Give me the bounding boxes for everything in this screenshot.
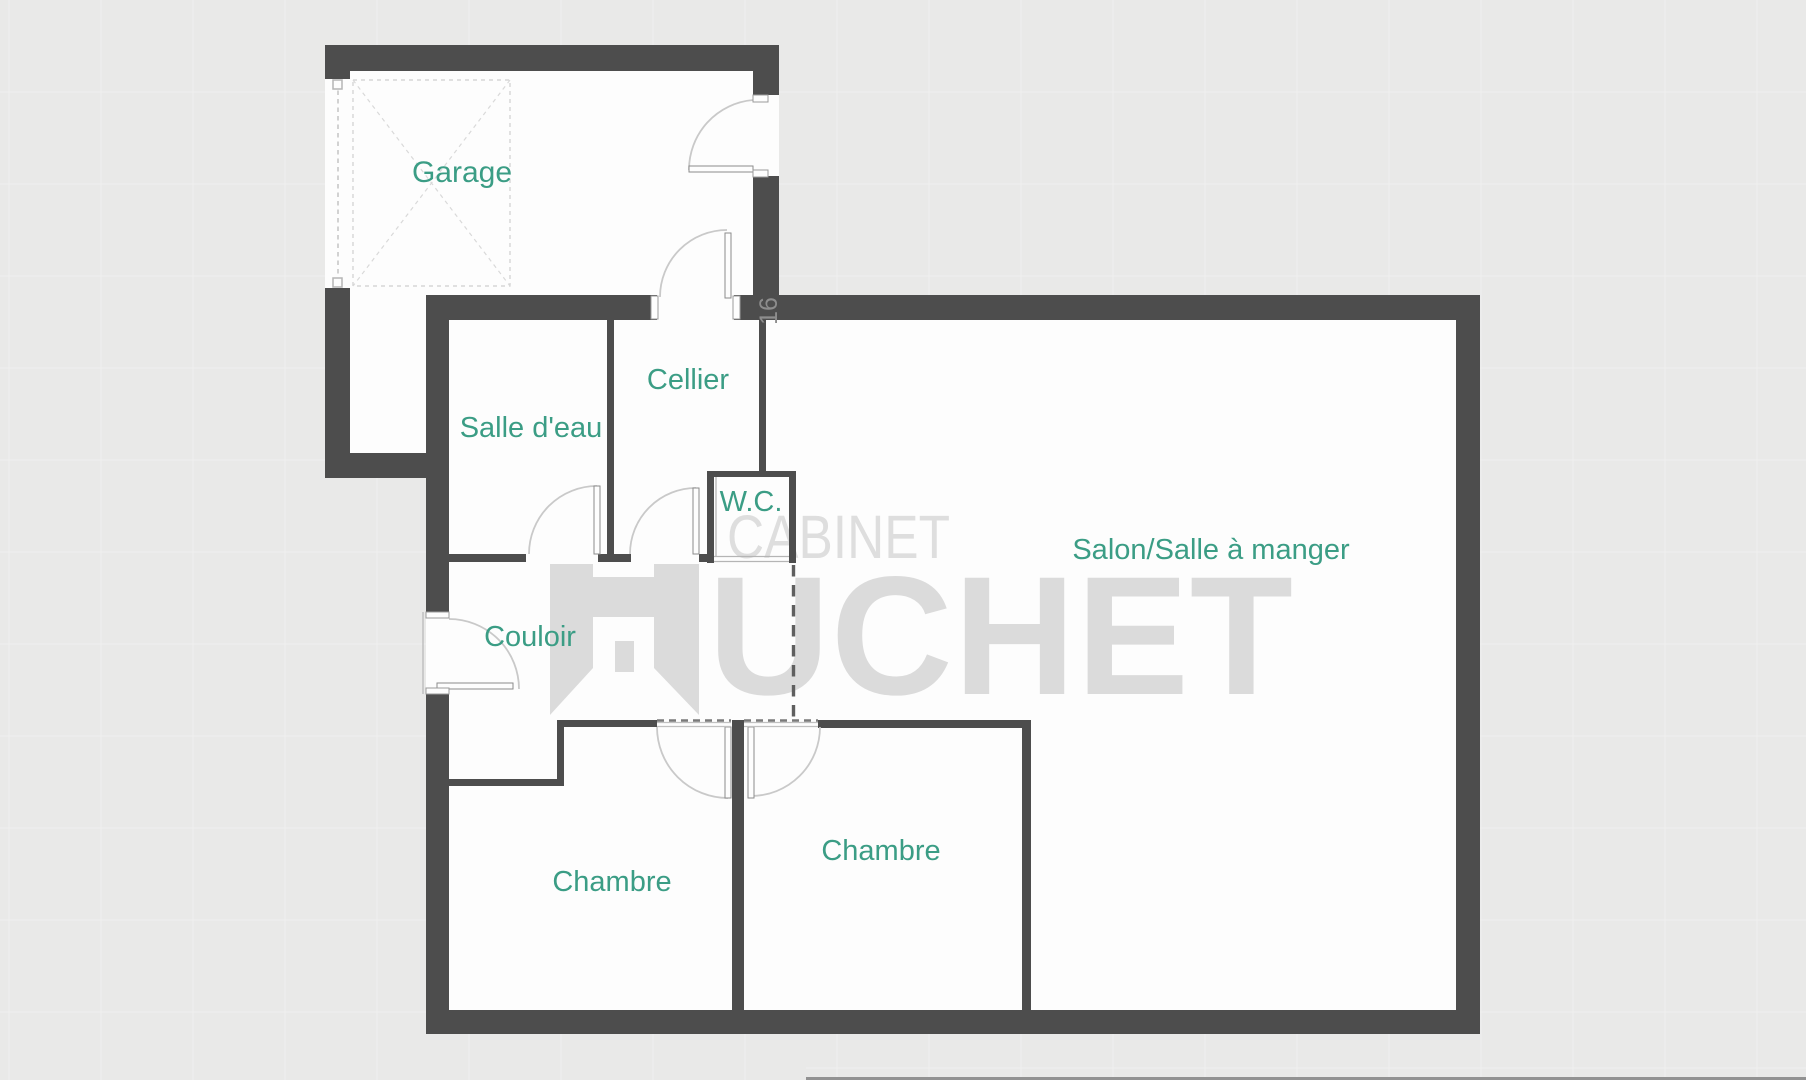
svg-text:Chambre: Chambre xyxy=(821,835,940,867)
svg-text:Cellier: Cellier xyxy=(647,364,730,396)
svg-text:16: 16 xyxy=(755,297,783,325)
svg-text:Salon/Salle à manger: Salon/Salle à manger xyxy=(1072,534,1350,566)
svg-text:UCHET: UCHET xyxy=(708,541,1293,730)
svg-text:Garage: Garage xyxy=(412,156,512,189)
svg-text:W.C.: W.C. xyxy=(720,486,783,518)
svg-text:Chambre: Chambre xyxy=(552,866,671,898)
svg-text:Salle d'eau: Salle d'eau xyxy=(460,412,603,444)
svg-text:Couloir: Couloir xyxy=(484,621,576,653)
